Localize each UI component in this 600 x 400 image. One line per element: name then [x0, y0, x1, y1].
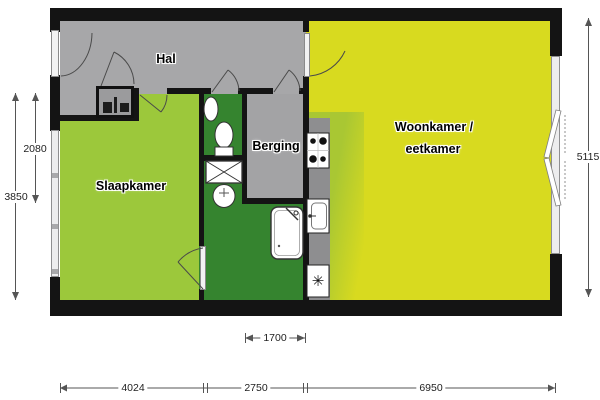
wall-bottom: [50, 300, 562, 316]
dim-right: 5115: [574, 151, 600, 163]
wall-hal-bottom-1: [167, 88, 211, 94]
wall-left-a: [50, 8, 60, 32]
window-tick-3: [52, 269, 58, 274]
label-slaapkamer: Slaapkamer: [96, 179, 166, 193]
floorplan-canvas: Hal Slaapkamer Berging Woonkamer / eetka…: [0, 0, 600, 400]
dim-bottom-middle: 2750: [241, 382, 270, 394]
wall-left-b: [50, 75, 60, 131]
dim-bottom-right: 6950: [416, 382, 445, 394]
wall-right-b: [550, 254, 562, 300]
dim-left-outer: 3850: [1, 191, 30, 203]
wall-top: [50, 8, 562, 21]
window-tick-1: [52, 173, 58, 178]
wall-main-vertical-a: [303, 21, 309, 32]
dim-bottom-left: 4024: [118, 382, 147, 394]
room-toilet: [199, 94, 247, 161]
dim-left-inner: 2080: [20, 143, 49, 155]
freezer-symbol: ✳: [307, 265, 329, 297]
wall-bedroom-bath-a: [199, 94, 204, 246]
meter-symbol-1: [103, 102, 112, 113]
livingroom-window: [551, 56, 560, 254]
wall-right-a: [550, 8, 562, 56]
bathroom-door-leaf: [200, 246, 206, 290]
wall-toilet-bath-divider: [199, 155, 247, 161]
wall-left-c: [50, 277, 60, 300]
label-berging: Berging: [252, 139, 299, 153]
label-woonkamer-line1: Woonkamer /: [395, 120, 473, 134]
label-woonkamer-line2: eetkamer: [406, 142, 461, 156]
wall-bedroom-bath-b: [199, 289, 204, 300]
meter-symbol-2: [114, 97, 117, 113]
dim-kitchen: 1700: [260, 332, 289, 344]
room-slaapkamer: [60, 94, 202, 300]
wall-berging-bottom: [242, 198, 306, 204]
front-door-leaf: [51, 30, 59, 77]
wall-toilet-berging: [242, 94, 247, 204]
meter-symbol-3: [120, 103, 129, 112]
bedroom-window: [51, 130, 59, 277]
window-tick-2: [52, 224, 58, 229]
meter-closet: [96, 86, 134, 118]
label-hal: Hal: [156, 52, 175, 66]
livingroom-door-leaf: [304, 33, 310, 77]
room-bathroom-lower: [242, 204, 306, 300]
room-bathroom-upper: [199, 155, 247, 300]
room-hal: [60, 21, 306, 94]
